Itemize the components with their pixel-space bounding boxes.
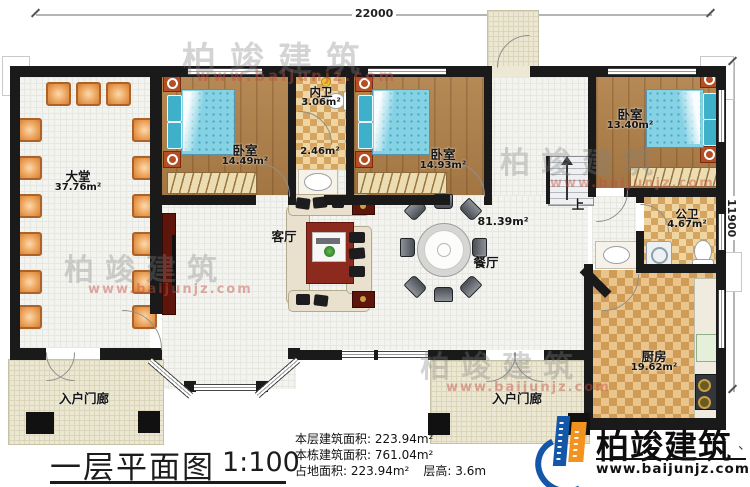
tv-icon — [172, 235, 175, 291]
bed-cushion — [167, 122, 182, 149]
wall — [546, 156, 550, 204]
wall — [636, 197, 644, 203]
room-label-porch-left: 入户门廊 — [59, 392, 109, 405]
dimension-tick — [706, 8, 715, 17]
hall-chair — [17, 305, 42, 329]
back-door-gap — [492, 66, 530, 77]
title-underline — [50, 481, 286, 484]
window — [718, 290, 725, 348]
room-label-public-bath: 公卫4.67m² — [667, 208, 706, 231]
room-label-living: 客厅 — [271, 230, 296, 243]
kitchen-sink-icon — [696, 334, 717, 362]
stat-line: 本层建筑面积: 223.94m² — [295, 431, 486, 447]
dining-chair — [400, 238, 415, 257]
wardrobe — [357, 172, 447, 194]
wall — [346, 66, 354, 195]
wall — [10, 348, 46, 360]
stair-up-label: 上 — [572, 198, 585, 211]
porch-column — [138, 411, 160, 433]
bay-window — [194, 384, 256, 391]
dining-chair — [434, 287, 453, 302]
bed-cushion — [358, 122, 373, 149]
bed-cushion — [167, 95, 182, 122]
stat-label: 占地面积: — [295, 464, 347, 478]
wall — [296, 350, 342, 360]
dimension-tick — [728, 384, 737, 393]
window — [718, 90, 725, 142]
wall — [484, 66, 492, 195]
sink-icon — [603, 246, 630, 264]
stats-block: 本层建筑面积: 223.94m² 本栋建筑面积: 761.04m² 占地面积: … — [295, 431, 486, 479]
wall — [100, 348, 150, 360]
stair-arrow — [566, 162, 568, 200]
sofa-pillow — [349, 247, 366, 259]
window — [342, 351, 374, 358]
sofa-pillow — [295, 197, 310, 210]
floor-plan-canvas: 22000 11900 — [0, 0, 750, 487]
window — [188, 68, 262, 75]
side-table — [352, 291, 375, 308]
nightstand — [163, 151, 181, 168]
hall-chair — [17, 270, 42, 294]
room-label-hall: 大堂37.76m² — [55, 170, 101, 194]
hall-chair — [17, 232, 42, 256]
bed-cushion — [358, 95, 373, 122]
coffee-table-tray — [316, 238, 340, 244]
room-label-porch-right: 入户门廊 — [492, 392, 542, 405]
wall — [288, 66, 296, 195]
room-label-dining: 餐厅 — [473, 256, 498, 269]
stat-line: 本栋建筑面积: 761.04m² — [295, 447, 486, 463]
hall-chair — [17, 156, 42, 180]
sink-icon — [304, 173, 332, 191]
window — [378, 351, 428, 358]
room-label-bedroom1: 卧室14.49m² — [222, 144, 268, 168]
hall-chair — [106, 82, 131, 106]
wall — [636, 264, 718, 273]
room-label-inner-bath: 内卫3.06m² — [301, 86, 340, 109]
window — [718, 214, 725, 250]
wall — [162, 195, 256, 205]
hall-chair — [76, 82, 101, 106]
stat-value: 223.94m² — [351, 464, 410, 478]
wardrobe — [630, 167, 718, 187]
sofa-pillow — [296, 294, 310, 305]
wall — [148, 348, 162, 360]
sofa-pillow — [313, 294, 328, 307]
stat-line: 占地面积: 223.94m²层高: 3.6m — [295, 463, 486, 479]
stat-label: 本栋建筑面积: — [295, 448, 371, 462]
wall — [588, 188, 596, 197]
brand-logo: 柏竣建筑 www.baijunjz.com — [533, 414, 747, 486]
brand-logo-icon — [533, 414, 593, 486]
bed-fold — [183, 91, 203, 151]
wardrobe — [167, 172, 257, 194]
window — [608, 68, 696, 75]
wall — [624, 188, 718, 197]
stray-mark: 、 — [738, 434, 750, 454]
wall — [324, 195, 354, 205]
wall — [584, 264, 593, 428]
wall — [150, 66, 162, 314]
porch-column — [26, 412, 54, 434]
wall — [10, 66, 20, 360]
plan-scale: 1:100 — [222, 447, 300, 478]
hall-chair — [17, 194, 42, 218]
stat-value: 3.6m — [455, 464, 486, 478]
dimension-tick — [31, 8, 40, 17]
washing-machine-drum — [651, 247, 668, 264]
dining-table-ring — [437, 243, 451, 257]
stove-burner — [698, 396, 711, 409]
dimension-right-label: 11900 — [725, 196, 738, 240]
bed-fold — [374, 91, 394, 151]
plant-icon — [324, 246, 335, 257]
hall-chair — [46, 82, 71, 106]
wall — [484, 195, 492, 205]
stat-label: 本层建筑面积: — [295, 432, 371, 446]
wall — [428, 350, 486, 360]
window — [368, 68, 446, 75]
stair-arrow-head — [561, 156, 573, 165]
room-label-kitchen: 厨房19.62m² — [631, 350, 677, 374]
hall-chair — [17, 118, 42, 142]
wall — [544, 350, 588, 360]
stove-burner — [698, 379, 711, 392]
stat-label: 层高: — [423, 464, 451, 478]
sofa-pillow — [349, 266, 365, 277]
wall — [354, 195, 450, 205]
dimension-top-label: 22000 — [352, 7, 396, 20]
nightstand — [163, 75, 181, 92]
stat-value: 761.04m² — [375, 448, 434, 462]
nightstand — [355, 151, 373, 168]
bed-fold — [678, 91, 700, 144]
brand-site: www.baijunjz.com — [596, 458, 746, 477]
room-label-bedroom3: 卧室13.40m² — [607, 108, 653, 132]
room-label-open-area: 81.39m² — [477, 216, 528, 228]
nightstand — [355, 75, 373, 92]
wall — [588, 66, 596, 197]
room-label-corridor: 2.46m² — [300, 147, 339, 158]
sofa-pillow — [349, 232, 365, 243]
stat-value: 223.94m² — [375, 432, 434, 446]
room-label-bedroom2: 卧室14.93m² — [420, 148, 466, 172]
